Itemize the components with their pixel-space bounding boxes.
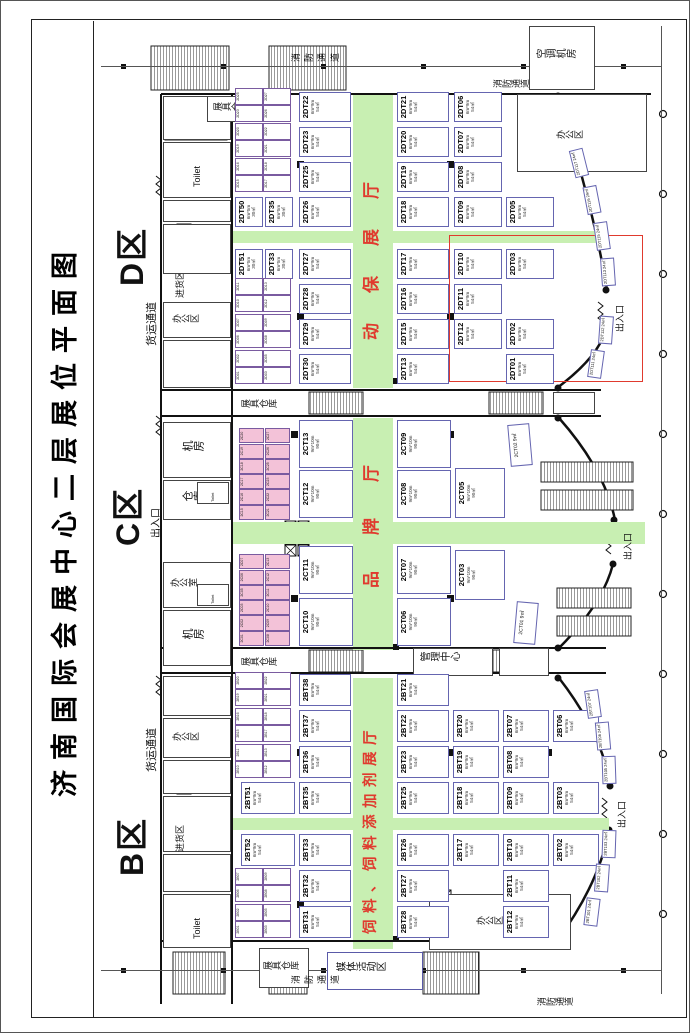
booth-2BT08: 2BT086m*9m 54㎡: [503, 746, 549, 778]
booth-2BT28: 2BT286m*9m 54㎡: [397, 906, 449, 938]
booth-2BT12: 2BT126m*9m 54㎡: [503, 906, 549, 938]
booth-2DT16: 2DT166m*9m 54㎡: [397, 284, 449, 314]
small-booth-2C07: 2C07: [239, 554, 264, 569]
booth-2CT10: 2CT109m*10m 90㎡: [299, 598, 353, 646]
booth-2DT03: 2DT036m*9m 54㎡: [506, 249, 554, 279]
wall-booth-2BT105: 2BT105 24㎡: [602, 756, 617, 784]
booth-id: 2BT23: [398, 747, 408, 777]
zone-label-d: D区: [107, 227, 153, 286]
booth-size: 6m*9m 54㎡: [517, 320, 527, 348]
booth-store-b: 展具仓库: [263, 959, 299, 972]
booth-size: 6m*9m 54㎡: [408, 93, 418, 121]
booth-2DT10: 2DT106m*9m 54㎡: [454, 249, 502, 279]
booth-id: 2BT51: [242, 783, 252, 813]
mgmt-center-label: 管理中心: [420, 651, 460, 666]
small-booth-2B10: 2B10: [235, 761, 263, 778]
booth-size: 6m*9m 54㎡: [408, 163, 418, 191]
small-booth-2B20: 2B20: [235, 672, 263, 689]
aisle-b-cross: [233, 818, 609, 830]
office-area-d: 办公区: [172, 312, 199, 325]
booth-2CT06: 2CT069m*10m 90㎡: [397, 598, 451, 646]
small-booth-2C08: 2C08: [265, 631, 290, 646]
booth-size: 6m*9m 54㎡: [310, 783, 320, 813]
booth-id: 2CT08: [398, 471, 408, 517]
booth-2BT10: 2BT106m*9m 54㎡: [503, 834, 549, 866]
booth-size: 6m*5m 30㎡: [276, 198, 286, 226]
small-booth-2C21: 2C21: [265, 505, 290, 520]
entrance-c: 出入口: [621, 533, 634, 560]
small-booth-2C09: 2C09: [265, 615, 290, 630]
booth-2BT25: 2BT256m*9m 54㎡: [397, 782, 449, 814]
booth-size: 6m*5m 30㎡: [246, 198, 256, 226]
media-area-label: 媒体活动区: [336, 961, 386, 976]
booth-2CT12: 2CT129m*10m 90㎡: [299, 470, 353, 518]
booth-size: 6m*9m 54㎡: [514, 835, 524, 865]
office-area-b: 办公区: [172, 730, 199, 743]
small-booth-2D27: 2D27: [263, 88, 291, 105]
machine-room-c2: 机房: [163, 422, 231, 478]
office-room-b: 办公区: [163, 718, 231, 758]
booth-id: 2CT07: [398, 547, 408, 593]
small-booth-2B15: 2B15: [235, 725, 263, 742]
small-booth-2D11: 2D11: [235, 278, 263, 295]
booth-id: 2DT20: [398, 128, 408, 156]
booth-size: 6m*9m 54㎡: [517, 198, 527, 226]
small-booth-2D13: 2D13: [263, 278, 291, 295]
booth-size: 6m*9m 54㎡: [252, 783, 262, 813]
small-booth-2D10: 2D10: [235, 295, 263, 312]
booth-size: 6m*5m 30㎡: [246, 250, 256, 278]
small-booth-2D17: 2D17: [263, 175, 291, 192]
booth-id: 2BT52: [242, 835, 252, 865]
small-booth-2B02: 2B02: [235, 904, 263, 921]
booth-2DT51: 2DT516m*5m 30㎡: [235, 249, 263, 279]
booth-id: 2DT09: [455, 198, 465, 226]
booth-2BT21: 2BT216m*9m 54㎡: [397, 674, 449, 706]
booth-2DT17: 2DT176m*9m 54㎡: [397, 249, 449, 279]
toilet-small-c1-label: Toilet: [210, 595, 215, 604]
booth-id: 2BT37: [300, 711, 310, 741]
title-box: 济南国际会展中心二层展位平面图: [31, 21, 94, 1018]
booth-size: 6m*9m 54㎡: [465, 198, 475, 226]
floor-plan-canvas: 济南国际会展中心二层展位平面图 B区 货运通道 C区 出入口 D区 货运通道 T…: [1, 1, 690, 1033]
booth-size: 9m*10m 90㎡: [310, 421, 320, 467]
booth-size: 9m*10m 90㎡: [408, 421, 418, 467]
booth-2DT07: 2DT076m*9m 54㎡: [454, 127, 502, 157]
small-booth-2D23: 2D23: [235, 105, 263, 122]
booth-id: 2BT33: [300, 835, 310, 865]
booth-size: 6m*9m 54㎡: [464, 711, 474, 741]
booth-2BT51: 2BT516m*9m 54㎡: [241, 782, 295, 814]
booth-id: 2DT17: [398, 250, 408, 278]
hall-name-b: 饲料、饲料添加剂展厅: [359, 724, 380, 934]
goods-in-d: 进货区: [173, 271, 186, 298]
small-booth-2D22: 2D22: [263, 123, 291, 140]
small-booth-2D02: 2D02: [235, 350, 263, 367]
booth-size: 9m*10m 90㎡: [310, 471, 320, 517]
room-b1: [163, 854, 231, 892]
goods-in-b: 进货区: [173, 825, 186, 852]
small-booth-2B06: 2B06: [235, 885, 263, 902]
booth-2DT09: 2DT096m*9m 54㎡: [454, 197, 502, 227]
booth-id: 2BT09: [504, 783, 514, 813]
booth-size: 6m*9m 54㎡: [464, 783, 474, 813]
small-booth-2B22: 2B22: [263, 672, 291, 689]
small-booth-2B17: 2B17: [263, 725, 291, 742]
small-booth-2C11: 2C11: [265, 585, 290, 600]
booth-size: 6m*9m 54㎡: [517, 250, 527, 278]
floor-plan-page: 济南国际会展中心二层展位平面图 B区 货运通道 C区 出入口 D区 货运通道 T…: [0, 0, 690, 1033]
booth-id: 2BT26: [398, 835, 408, 865]
booth-id: 2DT06: [455, 93, 465, 121]
small-booth-2B03: 2B03: [263, 921, 291, 938]
booth-id: 2BT17: [454, 835, 464, 865]
booth-id: 2BT31: [300, 907, 310, 937]
booth-id: 2BT11: [504, 871, 514, 901]
booth-size: 9m*10m 90㎡: [466, 551, 476, 599]
office-room-c-label: 办公室: [170, 576, 197, 589]
booth-2BT17: 2BT176m*9m 54㎡: [453, 834, 499, 866]
booth-id: 2DT21: [398, 93, 408, 121]
machine-room-c2-label: 机房: [182, 439, 204, 455]
booth-2DT35: 2DT356m*5m 30㎡: [265, 197, 293, 227]
booth-2CT01: 2CT01 9㎡: [513, 601, 539, 645]
zone-label-b: B区: [107, 817, 153, 876]
booth-size: 6m*9m 54㎡: [514, 783, 524, 813]
booth-2DT28: 2DT286m*9m 54㎡: [299, 284, 351, 314]
small-booth-2B21: 2B21: [263, 689, 291, 706]
booth-size: 9m*10m 90㎡: [408, 599, 418, 645]
booth-size: 6m*9m 54㎡: [310, 285, 320, 313]
booth-2CT13: 2CT139m*10m 90㎡: [299, 420, 353, 468]
booth-size: 9m*10m 90㎡: [408, 547, 418, 593]
small-booth-2D19: 2D19: [235, 140, 263, 157]
booth-id: 2DT22: [300, 93, 310, 121]
small-booth-2C12: 2C12: [265, 570, 290, 585]
booth-2BT26: 2BT266m*9m 54㎡: [397, 834, 449, 866]
booth-size: 6m*9m 54㎡: [408, 675, 418, 705]
booth-id: 2CT05: [456, 469, 466, 517]
booth-2BT02: 2BT026m*9m 54㎡: [553, 834, 599, 866]
booth-size: 6m*9m 54㎡: [310, 835, 320, 865]
small-booth-2C20: 2C20: [239, 428, 264, 443]
booth-id: 2CT10: [300, 599, 310, 645]
booth-size: 6m*9m 54㎡: [408, 285, 418, 313]
booth-id: 2CT03: [456, 551, 466, 599]
booth-size: 9m*10m 90㎡: [466, 469, 476, 517]
booth-size: 6m*9m 54㎡: [514, 907, 524, 937]
booth-2BT31: 2BT316m*9m 54㎡: [299, 906, 351, 938]
booth-2DT11: 2DT116m*9m 54㎡: [454, 284, 502, 314]
office-room-d: 办公区: [163, 302, 231, 338]
booth-2DT30: 2DT306m*9m 54㎡: [299, 354, 351, 384]
booth-2BT37: 2BT376m*9m 54㎡: [299, 710, 351, 742]
office-area-sw: 办公区: [476, 914, 503, 927]
small-booth-2D12: 2D12: [263, 295, 291, 312]
booth-2BT22: 2BT226m*9m 54㎡: [397, 710, 449, 742]
booth-size: 6m*9m 54㎡: [252, 835, 262, 865]
booth-size: 6m*9m 54㎡: [310, 871, 320, 901]
small-booth-2C01: 2C01: [239, 631, 264, 646]
room-b3: [163, 676, 231, 716]
small-booth-2B01: 2B01: [235, 921, 263, 938]
fire-lane-ne: 消防通道: [291, 51, 343, 64]
booth-id: 2DT07: [455, 128, 465, 156]
booth-2BT33: 2BT336m*9m 54㎡: [299, 834, 351, 866]
small-booth-2C10: 2C10: [265, 600, 290, 615]
cd-wall-2: [161, 390, 601, 392]
small-booth-2B16: 2B16: [235, 708, 263, 725]
room-d1: [163, 340, 231, 388]
booth-id: 2BT32: [300, 871, 310, 901]
small-booth-2C15: 2C15: [239, 505, 264, 520]
toilet-small-c2: Toilet: [197, 482, 229, 504]
booth-2BT18: 2BT186m*9m 54㎡: [453, 782, 499, 814]
zone-label-c: C区: [103, 487, 149, 546]
small-booth-2C27: 2C27: [265, 428, 290, 443]
page-title: 济南国际会展中心二层展位平面图: [43, 242, 82, 797]
small-booth-2C03: 2C03: [239, 600, 264, 615]
wall-booth-2DT113: 2DT113 24㎡: [600, 258, 616, 287]
booth-size: 6m*9m 54㎡: [465, 128, 475, 156]
booth-size: 6m*9m 54㎡: [408, 747, 418, 777]
booth-id: 2DT10: [455, 250, 465, 278]
wall-booth-2BT106: 2BT106 24㎡: [595, 721, 611, 750]
booth-2CT09: 2CT099m*10m 90㎡: [397, 420, 451, 468]
booth-size: 6m*9m 54㎡: [408, 835, 418, 865]
wall-booth-2DT112: 2DT112 24㎡: [598, 316, 614, 345]
room-bc-lower: [499, 648, 549, 676]
small-booth-2D06: 2D06: [235, 331, 263, 348]
booth-size: 6m*9m 54㎡: [408, 783, 418, 813]
entrance-b: 出入口: [615, 801, 628, 828]
booth-id: 2DT33: [266, 250, 276, 278]
booth-size: 6m*9m 54㎡: [465, 93, 475, 121]
booth-size: 6m*5m 30㎡: [276, 250, 286, 278]
small-booth-2B12: 2B12: [263, 761, 291, 778]
booth-2DT08: 2DT086m*9m 54㎡: [454, 162, 502, 192]
booth-2CT02: 2CT02 9㎡: [507, 423, 533, 467]
entrance-c-top: 出入口: [147, 508, 162, 538]
office-block-sw: 办公区: [429, 894, 571, 950]
small-booth-2C02: 2C02: [239, 615, 264, 630]
booth-size: 6m*9m 54㎡: [465, 163, 475, 191]
booth-2BT36: 2BT366m*9m 54㎡: [299, 746, 351, 778]
room-b2: [163, 760, 231, 794]
booth-size: 6m*9m 54㎡: [310, 163, 320, 191]
toilet-small-c2-label: Toilet: [210, 493, 215, 502]
booth-size: 6m*9m 54㎡: [517, 355, 527, 383]
booth-2DT27: 2DT276m*9m 54㎡: [299, 249, 351, 279]
room-cd-lower: [553, 392, 595, 414]
booth-id: 2DT18: [398, 198, 408, 226]
booth-size: 6m*9m 54㎡: [465, 285, 475, 313]
booth-size: 6m*9m 54㎡: [564, 783, 574, 813]
wall-booth-2BT102: 2BT102 24㎡: [594, 864, 610, 893]
booth-size: 6m*9m 54㎡: [408, 355, 418, 383]
hvac-room: 空调机房: [529, 26, 595, 90]
wall-booth-2BT103: 2BT103 24㎡: [602, 830, 617, 858]
freight-lane-b: 货运通道: [143, 728, 159, 772]
booth-id: 2BT36: [300, 747, 310, 777]
toilet-label-b: Toilet: [192, 918, 202, 939]
booth-id: 2DT28: [300, 285, 310, 313]
booth-2BT11: 2BT116m*9m 54㎡: [503, 870, 549, 902]
booth-2CT08: 2CT089m*10m 90㎡: [397, 470, 451, 518]
booth-2BT07: 2BT076m*9m 54㎡: [503, 710, 549, 742]
small-booth-2C06: 2C06: [239, 570, 264, 585]
booth-id: 2CT13: [300, 421, 310, 467]
booth-2DT29: 2DT296m*9m 54㎡: [299, 319, 351, 349]
booth-id: 2DT11: [455, 285, 465, 313]
booth-2DT05: 2DT056m*9m 54㎡: [506, 197, 554, 227]
small-booth-2D05: 2D05: [263, 350, 291, 367]
toilet-small-c1: Toilet: [197, 584, 229, 606]
freight-lane-d: 货运通道: [143, 302, 159, 346]
booth-id: 2CT09: [398, 421, 408, 467]
fire-lane-e: 消防通道: [493, 77, 529, 90]
booth-2DT20: 2DT206m*9m 54㎡: [397, 127, 449, 157]
booth-id: 2BT22: [398, 711, 408, 741]
booth-id: 2DT30: [300, 355, 310, 383]
booth-id: 2BT18: [454, 783, 464, 813]
booth-2DT02: 2DT026m*9m 54㎡: [506, 319, 554, 349]
small-booth-2D07: 2D07: [235, 314, 263, 331]
small-booth-2D18: 2D18: [263, 158, 291, 175]
small-booth-2D21: 2D21: [263, 140, 291, 157]
booth-size: 6m*9m 54㎡: [310, 675, 320, 705]
booth-id: 2DT27: [300, 250, 310, 278]
booth-2DT33: 2DT336m*5m 30㎡: [265, 249, 293, 279]
toilet-room-d: Toilet: [163, 142, 231, 198]
booth-2CT05: 2CT059m*10m 90㎡: [455, 468, 505, 518]
booth-id: 2DT26: [300, 198, 310, 226]
booth-id: 2BT06: [554, 711, 564, 741]
booth-size: 6m*9m 54㎡: [408, 198, 418, 226]
small-booth-2C18: 2C18: [239, 459, 264, 474]
small-booth-2D01: 2D01: [235, 367, 263, 384]
booth-store-bc: 展具仓库: [241, 655, 277, 668]
booth-2CT03: 2CT039m*10m 90㎡: [455, 550, 505, 600]
booth-id: 2BT10: [504, 835, 514, 865]
booth-size: 6m*9m 54㎡: [408, 907, 418, 937]
booth-size: 6m*9m 54㎡: [408, 320, 418, 348]
booth-id: 2BT28: [398, 907, 408, 937]
booth-id: 2DT16: [398, 285, 408, 313]
small-booth-2C16: 2C16: [239, 489, 264, 504]
toilet-label-d: Toilet: [192, 166, 202, 187]
small-booth-2C26: 2C26: [265, 444, 290, 459]
booth-id: 2BT38: [300, 675, 310, 705]
booth-2DT12: 2DT126m*9m 54㎡: [454, 319, 502, 349]
booth-id: 2DT50: [236, 198, 246, 226]
booth-id: 2DT12: [455, 320, 465, 348]
booth-2DT21: 2DT216m*9m 54㎡: [397, 92, 449, 122]
booth-id: 2CT11: [300, 547, 310, 593]
hall-name-c: 品牌厅: [357, 429, 382, 588]
booth-id: 2BT03: [554, 783, 564, 813]
hall-name-d: 动保展厅: [357, 152, 382, 340]
booth-size: 6m*9m 54㎡: [310, 355, 320, 383]
small-booth-2C22: 2C22: [265, 489, 290, 504]
small-booth-2B08: 2B08: [263, 885, 291, 902]
booth-id: 2BT25: [398, 783, 408, 813]
booth-2DT01: 2DT016m*9m 54㎡: [506, 354, 554, 384]
booth-id: 2DT51: [236, 250, 246, 278]
booth-size: 6m*9m 54㎡: [310, 907, 320, 937]
booth-id: 2BT27: [398, 871, 408, 901]
mgmt-center-room: 管理中心: [413, 648, 493, 676]
small-booth-2C17: 2C17: [239, 474, 264, 489]
booth-id: 2DT19: [398, 163, 408, 191]
booth-size: 6m*9m 54㎡: [310, 250, 320, 278]
booth-2DT18: 2DT186m*9m 54㎡: [397, 197, 449, 227]
fire-lane-sw: 消防通道: [291, 973, 343, 986]
booth-2DT13: 2DT136m*9m 54㎡: [397, 354, 449, 384]
booth-id: 2DT15: [398, 320, 408, 348]
small-booth-2D26: 2D26: [263, 105, 291, 122]
booth-size: 6m*9m 54㎡: [465, 320, 475, 348]
small-booth-2B18: 2B18: [263, 708, 291, 725]
booth-id: 2BT12: [504, 907, 514, 937]
booth-id: 2BT02: [554, 835, 564, 865]
booth-id: 2DT23: [300, 128, 310, 156]
booth-2BT20: 2BT206m*9m 54㎡: [453, 710, 499, 742]
booth-id: 2DT13: [398, 355, 408, 383]
booth-size: 6m*9m 54㎡: [310, 93, 320, 121]
small-booth-2B19: 2B19: [235, 689, 263, 706]
booth-size: 9m*10m 90㎡: [408, 471, 418, 517]
cd-wall-1: [161, 416, 601, 418]
booth-2DT15: 2DT156m*9m 54㎡: [397, 319, 449, 349]
small-booth-2D20: 2D20: [235, 123, 263, 140]
booth-id: 2DT25: [300, 163, 310, 191]
machine-room-c1: 机房: [163, 610, 231, 666]
booth-size: 6m*9m 54㎡: [408, 128, 418, 156]
booth-size: 6m*9m 54㎡: [310, 747, 320, 777]
booth-id: 2BT20: [454, 711, 464, 741]
machine-room-c1-label: 机房: [182, 627, 204, 643]
booth-id: 2BT35: [300, 783, 310, 813]
booth-2DT22: 2DT226m*9m 54㎡: [299, 92, 351, 122]
booth-2BT52: 2BT526m*9m 54㎡: [241, 834, 295, 866]
hall-top-wall: [231, 94, 233, 1004]
booth-size: 6m*9m 54㎡: [564, 711, 574, 741]
booth-size: 6m*9m 54㎡: [514, 747, 524, 777]
small-booth-2D16: 2D16: [235, 158, 263, 175]
booth-size: 6m*9m 54㎡: [310, 128, 320, 156]
booth-id: 2DT02: [507, 320, 517, 348]
toilet-room-b: Toilet: [163, 894, 231, 948]
small-booth-2C23: 2C23: [265, 474, 290, 489]
booth-id: 2DT35: [266, 198, 276, 226]
booth-id: 2DT05: [507, 198, 517, 226]
booth-id: 2BT07: [504, 711, 514, 741]
booth-size: 6m*9m 54㎡: [408, 250, 418, 278]
booth-id: 2CT12: [300, 471, 310, 517]
booth-size: 9m*10m 90㎡: [310, 547, 320, 593]
booth-size: 6m*9m 54㎡: [310, 320, 320, 348]
south-column-line: [661, 26, 662, 994]
booth-store-cd: 展具仓库: [241, 397, 277, 410]
booth-2DT26: 2DT266m*9m 54㎡: [299, 197, 351, 227]
booth-2BT38: 2BT386m*9m 54㎡: [299, 674, 351, 706]
small-booth-2C19: 2C19: [239, 444, 264, 459]
booth-2BT09: 2BT096m*9m 54㎡: [503, 782, 549, 814]
room-d2: [163, 200, 231, 222]
small-booth-2D03: 2D03: [263, 367, 291, 384]
booth-size: 6m*9m 54㎡: [408, 711, 418, 741]
